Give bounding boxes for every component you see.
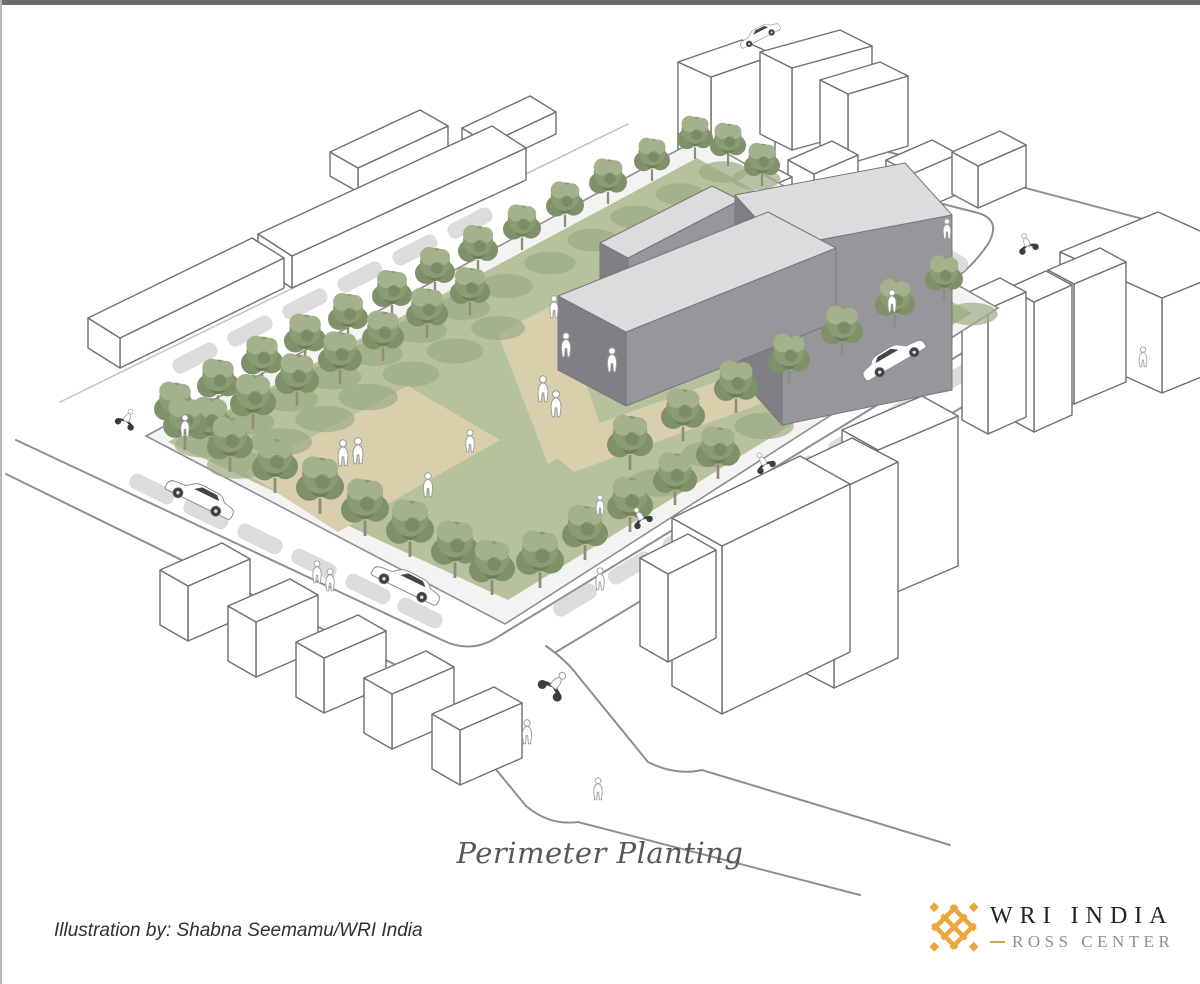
logo-dash bbox=[990, 941, 1005, 943]
wri-india-logo: WRI INDIA ROSS CENTER bbox=[930, 902, 1174, 952]
wri-logo-icon bbox=[930, 902, 978, 952]
top-frame-bar bbox=[0, 0, 1200, 5]
page: Perimeter Planting Illustration by: Shab… bbox=[0, 0, 1200, 984]
illustration-caption: Perimeter Planting bbox=[0, 836, 1200, 870]
wri-logo-org-name: WRI INDIA bbox=[990, 903, 1174, 930]
wri-logo-sub-name: ROSS CENTER bbox=[1012, 932, 1174, 952]
attribution-credit: Illustration by: Shabna Seemamu/WRI Indi… bbox=[54, 920, 423, 942]
wri-logo-text: WRI INDIA ROSS CENTER bbox=[990, 903, 1174, 952]
wri-logo-subtitle: ROSS CENTER bbox=[990, 932, 1174, 952]
